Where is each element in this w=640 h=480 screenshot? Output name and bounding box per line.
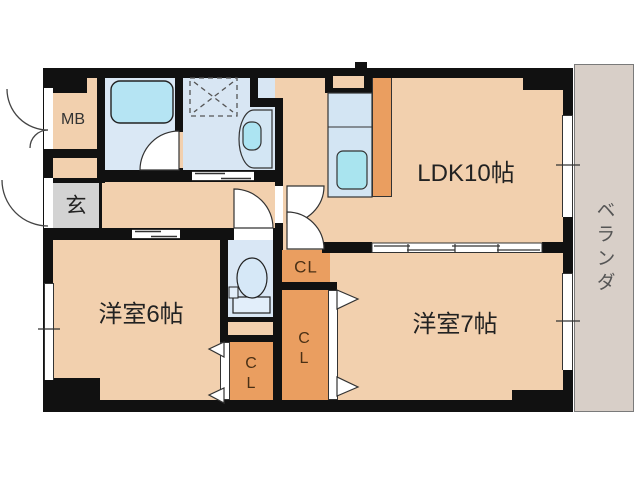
bathroom-door <box>140 131 179 170</box>
bathtub-icon <box>111 81 173 123</box>
kitchen-sink-icon <box>337 151 367 189</box>
toilet-tank <box>233 297 270 313</box>
toilet-flush-handle <box>229 287 238 298</box>
bifold-arrow <box>337 290 358 309</box>
floorplan: LDK10帖 洋室6帖 洋室7帖 玄 MB CL CL CL ベランダ <box>0 0 640 480</box>
bifold-arrow <box>209 342 224 357</box>
veranda-label: ベランダ <box>591 200 618 296</box>
room-label-meter-box: MB <box>61 112 85 128</box>
closet-label-small: CL <box>243 354 260 394</box>
entrance-door-arc <box>2 180 48 226</box>
closet-label-hall: CL <box>294 259 318 276</box>
bifold-arrow <box>209 388 224 403</box>
room-label-ldk: LDK10帖 <box>417 162 514 186</box>
bifold-arrow <box>337 377 358 396</box>
closet-label-tall: CL <box>296 329 313 369</box>
room-label-west6: 洋室6帖 <box>98 303 183 327</box>
meter-box-door-arc-large <box>7 89 48 130</box>
closet-hall-door <box>287 212 324 249</box>
washing-machine-cross <box>194 82 233 112</box>
washing-machine-cross <box>194 82 233 112</box>
room-label-west7: 洋室7帖 <box>412 313 497 337</box>
washbasin-bowl <box>243 122 261 150</box>
fixtures-layer <box>0 0 640 480</box>
meter-box-door-arc-small <box>30 130 48 148</box>
toilet-door <box>234 189 273 228</box>
toilet-icon <box>237 258 267 298</box>
sliding-door-ldk <box>372 243 542 253</box>
room-label-entrance: 玄 <box>66 196 87 217</box>
